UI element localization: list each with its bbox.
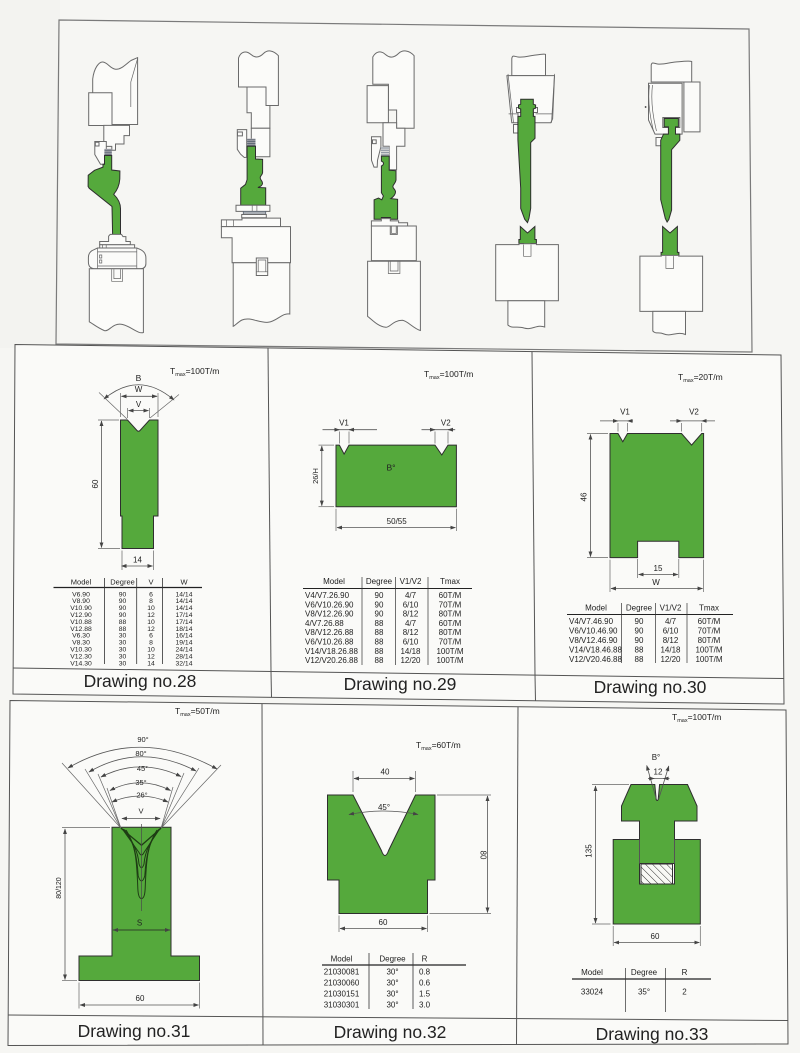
svg-text:21030060: 21030060 <box>324 979 360 988</box>
svg-text:88: 88 <box>375 628 384 637</box>
svg-text:90: 90 <box>635 627 644 636</box>
svg-text:60: 60 <box>136 994 145 1003</box>
svg-text:Model: Model <box>331 955 353 964</box>
svg-text:B: B <box>136 373 142 383</box>
svg-text:50/55: 50/55 <box>387 517 408 526</box>
svg-text:0.8: 0.8 <box>419 968 431 977</box>
svg-text:100T/M: 100T/M <box>436 647 463 656</box>
svg-text:4/V7.26.88: 4/V7.26.88 <box>305 619 344 628</box>
svg-text:60T/M: 60T/M <box>439 619 462 628</box>
svg-text:70T/M: 70T/M <box>698 627 721 636</box>
svg-text:V14.30: V14.30 <box>70 660 92 667</box>
svg-text:R: R <box>682 968 688 977</box>
svg-text:4/7: 4/7 <box>405 591 417 600</box>
svg-text:8/12: 8/12 <box>663 636 679 645</box>
svg-text:88: 88 <box>635 655 644 664</box>
svg-text:Drawing no.32: Drawing no.32 <box>334 1022 447 1042</box>
svg-text:Degree: Degree <box>626 604 653 613</box>
svg-text:Model: Model <box>581 968 603 977</box>
svg-text:1.5: 1.5 <box>419 990 431 999</box>
svg-text:40: 40 <box>381 768 390 777</box>
svg-text:26°: 26° <box>136 791 147 800</box>
svg-text:88: 88 <box>375 647 384 656</box>
svg-text:V1: V1 <box>339 419 349 428</box>
svg-text:80/120: 80/120 <box>56 877 63 899</box>
svg-text:V1/V2: V1/V2 <box>660 604 682 613</box>
svg-text:V2: V2 <box>689 408 699 417</box>
svg-text:46: 46 <box>580 492 589 501</box>
svg-text:30°: 30° <box>386 968 398 977</box>
svg-text:100T/M: 100T/M <box>436 656 463 665</box>
svg-text:V1: V1 <box>620 408 630 417</box>
svg-text:V8/V12.26.90: V8/V12.26.90 <box>305 610 354 619</box>
svg-text:V4/V7.46.90: V4/V7.46.90 <box>569 617 614 626</box>
svg-text:W: W <box>652 578 660 587</box>
svg-text:V: V <box>136 400 142 409</box>
svg-text:V8/V12.26.88: V8/V12.26.88 <box>305 628 354 637</box>
svg-text:V12/V20.26.88: V12/V20.26.88 <box>305 656 358 665</box>
svg-text:21030081: 21030081 <box>324 968 360 977</box>
svg-text:88: 88 <box>375 638 384 647</box>
svg-text:V6/V10.26.90: V6/V10.26.90 <box>305 600 354 609</box>
svg-text:12/20: 12/20 <box>400 656 421 665</box>
svg-text:V4/V7.26.90: V4/V7.26.90 <box>305 591 350 600</box>
svg-text:8/12: 8/12 <box>403 610 419 619</box>
svg-text:6/10: 6/10 <box>403 638 419 647</box>
svg-text:14/18: 14/18 <box>660 646 681 655</box>
svg-text:32/14: 32/14 <box>175 660 192 667</box>
svg-text:B°: B° <box>652 753 661 762</box>
svg-text:V2: V2 <box>441 419 451 428</box>
svg-text:12/20: 12/20 <box>660 655 681 664</box>
svg-text:80T/M: 80T/M <box>439 610 462 619</box>
svg-text:100T/M: 100T/M <box>695 646 722 655</box>
svg-text:Model: Model <box>585 604 607 613</box>
svg-text:30°: 30° <box>386 990 398 999</box>
svg-text:Degree: Degree <box>631 968 658 977</box>
svg-text:30°: 30° <box>386 979 398 988</box>
svg-text:Tmax: Tmax <box>440 577 460 586</box>
svg-text:Drawing no.31: Drawing no.31 <box>78 1021 191 1041</box>
svg-text:88: 88 <box>375 656 384 665</box>
svg-text:80T/M: 80T/M <box>439 628 462 637</box>
svg-text:60: 60 <box>651 932 660 941</box>
svg-text:135: 135 <box>585 844 594 858</box>
svg-text:Drawing no.28: Drawing no.28 <box>84 671 197 691</box>
svg-text:R: R <box>422 955 428 964</box>
svg-text:W: W <box>135 385 143 394</box>
svg-text:31030301: 31030301 <box>324 1001 360 1010</box>
svg-text:12: 12 <box>654 768 663 777</box>
svg-text:8/12: 8/12 <box>403 628 419 637</box>
svg-text:Degree: Degree <box>379 955 406 964</box>
svg-text:Model: Model <box>71 578 92 587</box>
svg-text:88: 88 <box>375 619 384 628</box>
svg-text:60: 60 <box>379 918 388 927</box>
svg-text:Degree: Degree <box>366 577 393 586</box>
svg-text:Model: Model <box>323 577 345 586</box>
svg-text:90: 90 <box>375 600 384 609</box>
svg-text:V1/V2: V1/V2 <box>400 577 422 586</box>
svg-text:V14/V18.46.88: V14/V18.46.88 <box>569 646 622 655</box>
svg-text:2: 2 <box>682 988 687 997</box>
svg-text:14: 14 <box>147 660 155 667</box>
svg-text:6/10: 6/10 <box>403 600 419 609</box>
svg-text:0.6: 0.6 <box>419 979 431 988</box>
svg-text:90: 90 <box>635 636 644 645</box>
svg-text:33024: 33024 <box>581 988 604 997</box>
svg-text:6/10: 6/10 <box>663 627 679 636</box>
svg-text:90: 90 <box>635 617 644 626</box>
svg-text:V8/V12.46.90: V8/V12.46.90 <box>569 636 618 645</box>
svg-text:88: 88 <box>635 646 644 655</box>
svg-text:V: V <box>138 807 143 816</box>
svg-text:45°: 45° <box>137 764 148 773</box>
svg-text:100T/M: 100T/M <box>695 655 722 664</box>
svg-text:14: 14 <box>133 556 142 565</box>
svg-text:35°: 35° <box>638 988 650 997</box>
svg-text:90: 90 <box>375 591 384 600</box>
svg-text:V: V <box>148 578 153 587</box>
svg-text:V6/V10.26.88: V6/V10.26.88 <box>305 638 354 647</box>
svg-text:Degree: Degree <box>110 578 135 587</box>
svg-text:60T/M: 60T/M <box>698 617 721 626</box>
svg-text:60: 60 <box>91 479 100 488</box>
svg-text:15: 15 <box>654 564 663 573</box>
svg-text:3.0: 3.0 <box>419 1001 431 1010</box>
svg-text:W: W <box>180 578 188 587</box>
svg-text:30: 30 <box>119 660 127 667</box>
svg-text:Tmax: Tmax <box>699 604 719 613</box>
svg-text:Drawing no.29: Drawing no.29 <box>344 674 457 694</box>
svg-text:B°: B° <box>386 463 395 473</box>
svg-text:V6/V10.46.90: V6/V10.46.90 <box>569 627 618 636</box>
svg-text:26/H: 26/H <box>311 468 320 484</box>
svg-text:80T/M: 80T/M <box>698 636 721 645</box>
svg-text:14/18: 14/18 <box>400 647 421 656</box>
svg-text:90°: 90° <box>137 735 148 744</box>
svg-text:Drawing no.33: Drawing no.33 <box>596 1024 709 1044</box>
svg-text:80: 80 <box>479 851 488 860</box>
svg-text:V12/V20.46.88: V12/V20.46.88 <box>569 655 622 664</box>
svg-text:60T/M: 60T/M <box>439 591 462 600</box>
svg-text:90: 90 <box>375 610 384 619</box>
svg-text:S: S <box>137 919 142 928</box>
svg-text:70T/M: 70T/M <box>439 638 462 647</box>
svg-text:70T/M: 70T/M <box>439 600 462 609</box>
svg-text:21030151: 21030151 <box>324 990 360 999</box>
svg-text:V14/V18.26.88: V14/V18.26.88 <box>305 647 358 656</box>
svg-text:Drawing no.30: Drawing no.30 <box>594 677 707 697</box>
svg-text:4/7: 4/7 <box>665 617 677 626</box>
svg-text:30°: 30° <box>386 1001 398 1010</box>
svg-text:4/7: 4/7 <box>405 619 417 628</box>
